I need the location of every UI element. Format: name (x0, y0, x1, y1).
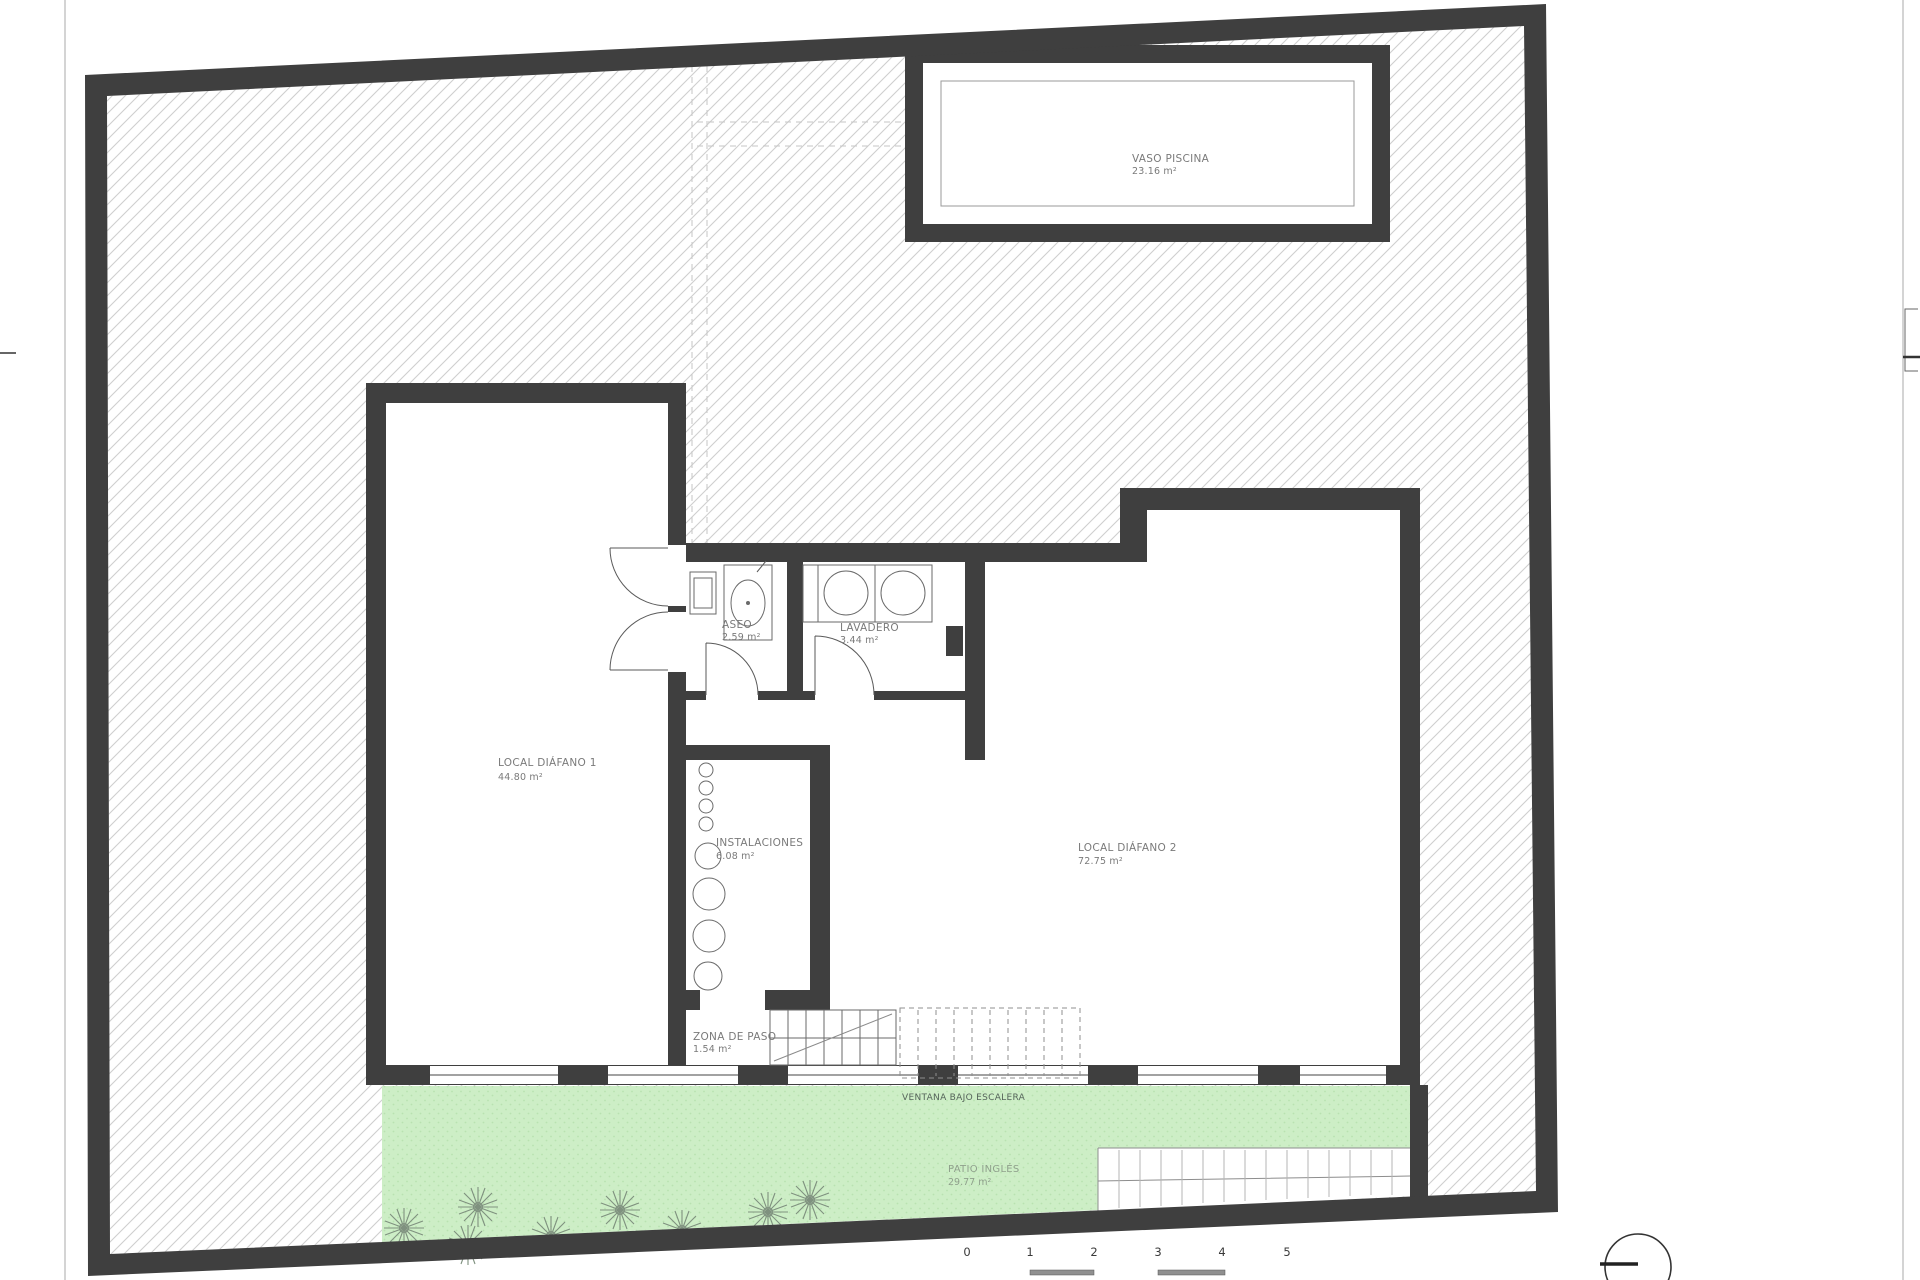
lavadero-fixtures (803, 565, 932, 622)
room-label-vaso-piscina: VASO PISCINA (1132, 153, 1210, 165)
room-label-aseo: ASEO (722, 619, 752, 631)
room-area-patio-ingles: 29.77 m² (948, 1177, 991, 1188)
room-label-lavadero: LAVADERO (840, 622, 899, 634)
room-label-local-diafano-1: LOCAL DIÁFANO 1 (498, 756, 597, 769)
room-area-zona-de-paso: 1.54 m² (693, 1044, 732, 1055)
room-label-local-diafano-2: LOCAL DIÁFANO 2 (1078, 841, 1177, 854)
room-label-instalaciones: INSTALACIONES (716, 837, 803, 849)
room-area-instalaciones: 6.08 m² (716, 851, 755, 862)
scale-tick-0: 0 (963, 1245, 970, 1259)
pool-vaso-piscina (905, 45, 1390, 242)
room-label-patio-ingles: PATIO INGLÉS (948, 1162, 1020, 1175)
room-area-local-diafano-1: 44.80 m² (498, 772, 543, 783)
scale-tick-2: 2 (1090, 1245, 1097, 1259)
pool-basin (923, 63, 1372, 224)
annotation-ventana-bajo-escalera: VENTANA BAJO ESCALERA (902, 1093, 1026, 1103)
scale-tick-3: 3 (1154, 1245, 1161, 1259)
room-area-aseo: 2.59 m² (722, 632, 761, 643)
room-area-local-diafano-2: 72.75 m² (1078, 856, 1123, 867)
room-label-zona-de-paso: ZONA DE PASO (693, 1031, 776, 1043)
scale-tick-4: 4 (1218, 1245, 1225, 1259)
scale-tick-5: 5 (1283, 1245, 1290, 1259)
scale-tick-1: 1 (1026, 1245, 1033, 1259)
room-area-vaso-piscina: 23.16 m² (1132, 166, 1177, 177)
floor-plan-sheet: 0 1 2 3 4 5 VASO PISCINA 23.16 m² LOCAL … (0, 0, 1920, 1280)
graphic-scale-bar: 0 1 2 3 4 5 (963, 1245, 1290, 1275)
floor-plan-drawing: 0 1 2 3 4 5 VASO PISCINA 23.16 m² LOCAL … (0, 0, 1920, 1280)
section-marker-icon (1600, 1234, 1671, 1280)
room-area-lavadero: 3.44 m² (840, 635, 879, 646)
right-edge-bracket (1905, 309, 1918, 371)
